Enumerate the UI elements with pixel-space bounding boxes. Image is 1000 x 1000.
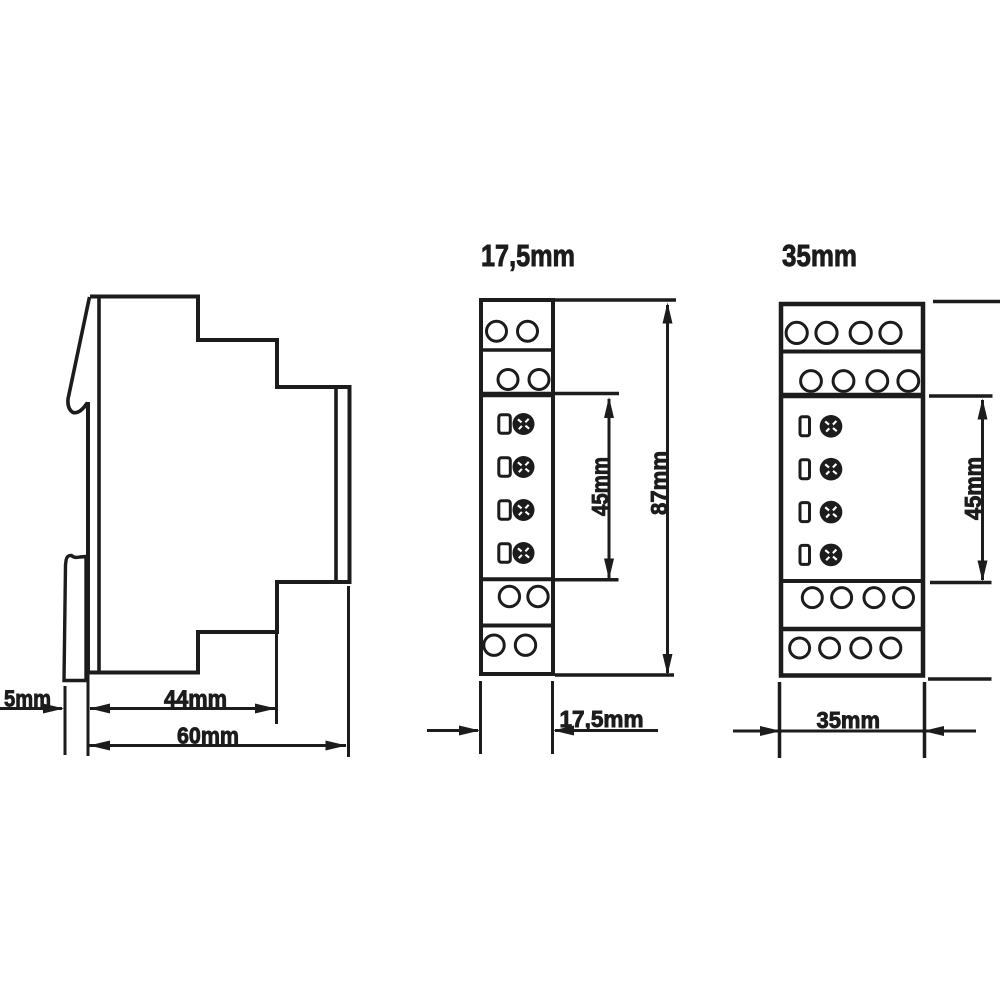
svg-text:44mm: 44mm bbox=[164, 686, 227, 712]
svg-text:45mm: 45mm bbox=[960, 457, 986, 520]
svg-text:45mm: 45mm bbox=[587, 457, 613, 516]
svg-text:5mm: 5mm bbox=[4, 686, 51, 712]
svg-text:87mm: 87mm bbox=[646, 451, 672, 515]
svg-text:35mm: 35mm bbox=[817, 707, 881, 733]
svg-text:60mm: 60mm bbox=[177, 723, 239, 749]
svg-text:17,5mm: 17,5mm bbox=[481, 238, 575, 273]
svg-text:35mm: 35mm bbox=[782, 238, 857, 273]
svg-text:17,5mm: 17,5mm bbox=[560, 706, 644, 732]
